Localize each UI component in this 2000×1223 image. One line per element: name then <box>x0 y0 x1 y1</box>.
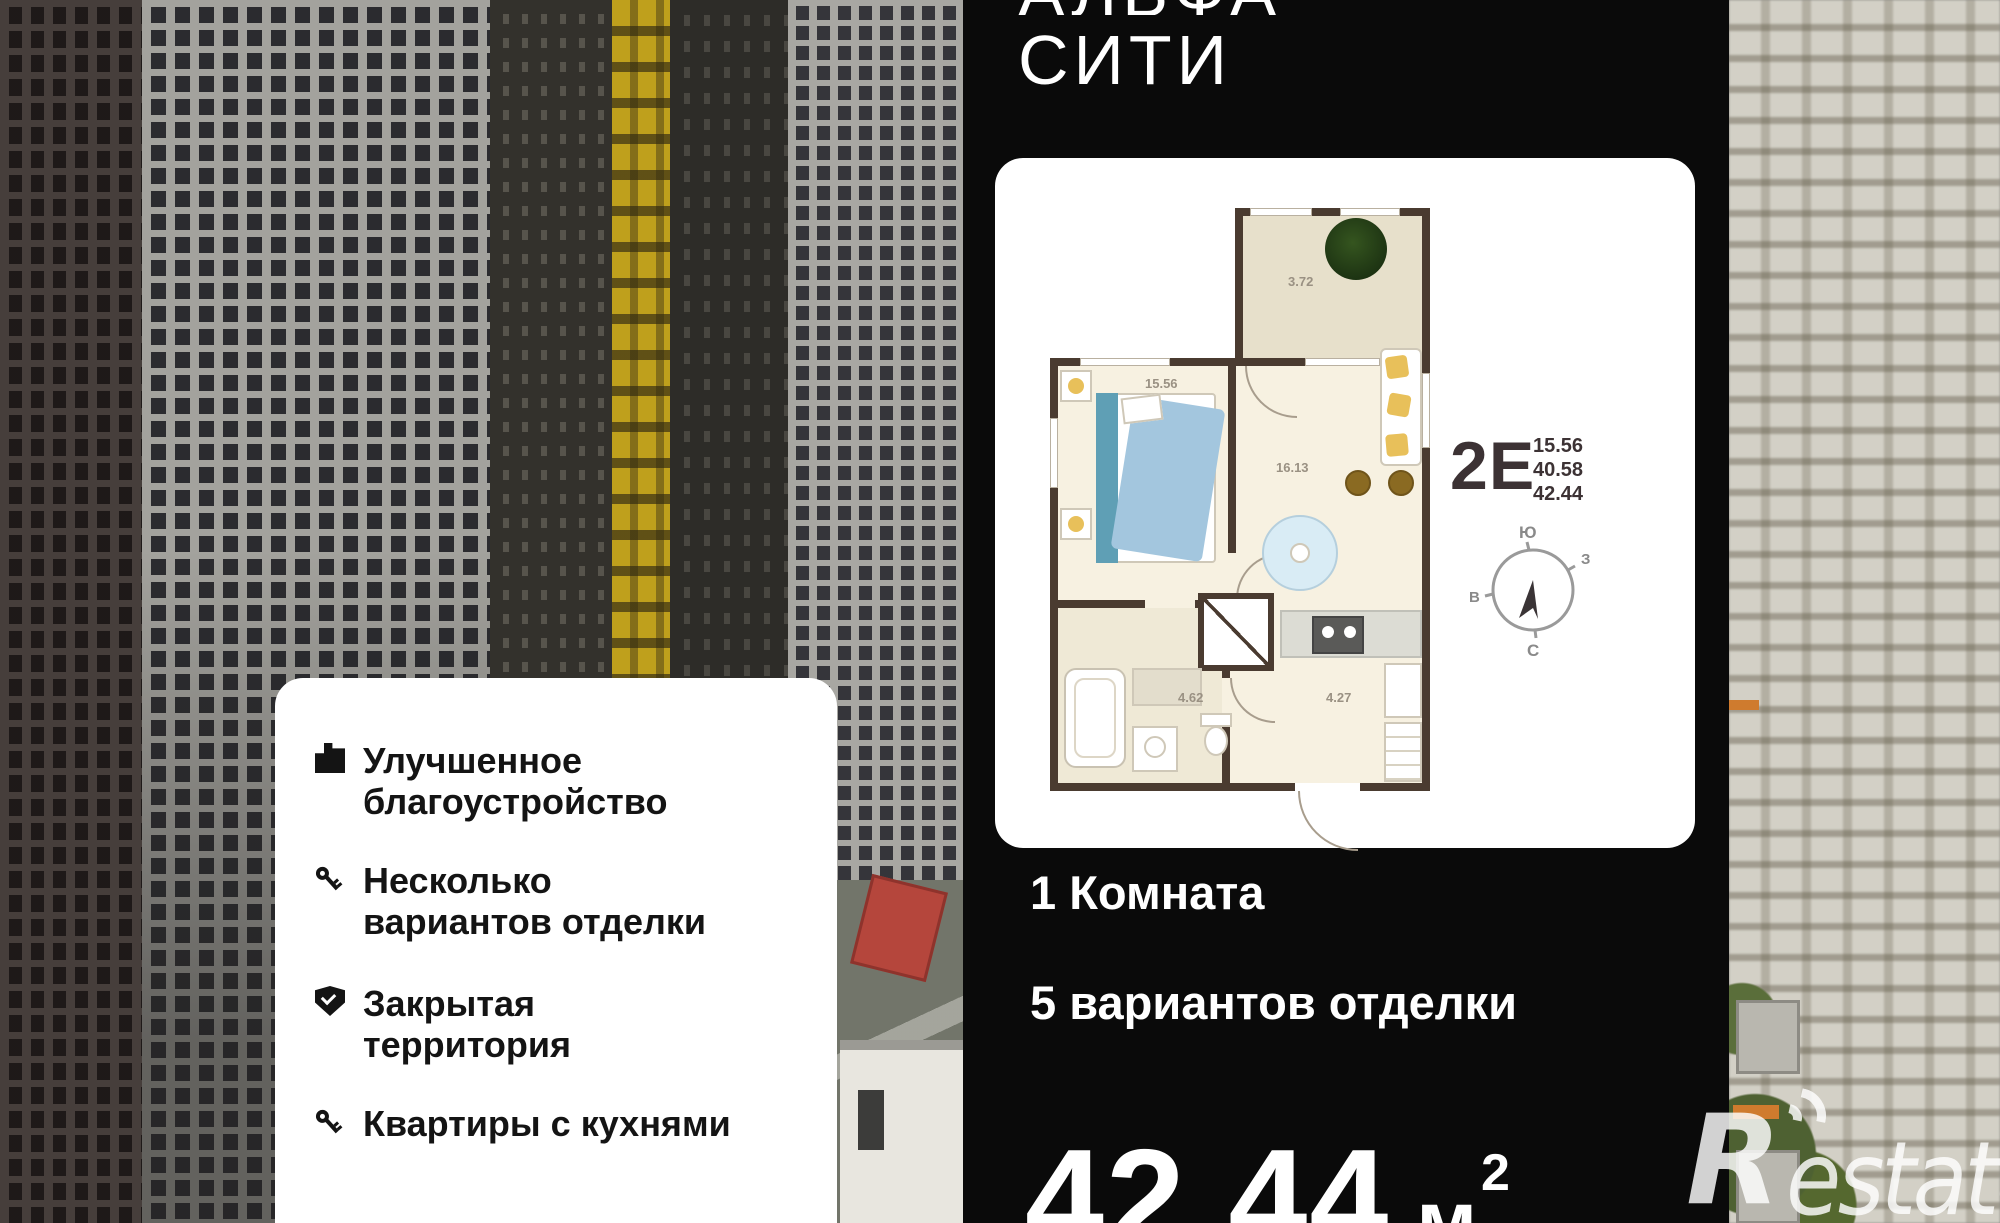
project-title-line2: СИТИ <box>1018 20 1232 100</box>
fridge <box>1384 663 1422 718</box>
feature-text: Улучшенное благоустройство <box>363 740 667 822</box>
chair <box>1345 470 1371 496</box>
feature-text: Закрытая территория <box>363 983 571 1065</box>
wall <box>1422 208 1430 366</box>
area-total: 42.44 <box>1533 482 1583 506</box>
compass-north-label: С <box>1527 641 1539 660</box>
window <box>1340 208 1400 216</box>
window <box>1080 358 1170 366</box>
key-icon <box>309 857 351 899</box>
sofa-pillow <box>1385 433 1409 457</box>
area-living: 40.58 <box>1533 458 1583 482</box>
compass: Ю З В С <box>1463 520 1603 660</box>
watermark-logo-text: estate <box>1786 1120 2000 1223</box>
wall <box>1050 783 1295 791</box>
lamp <box>1068 378 1084 394</box>
watermark-logo-letter: R <box>1686 1089 1781 1223</box>
area-rooms: 15.56 <box>1533 434 1583 458</box>
pillow <box>1121 394 1164 425</box>
area-figures: 15.56 40.58 42.44 <box>1533 434 1583 506</box>
ad-banner: АЛЬФА СИТИ <box>0 0 2000 1223</box>
orange-accent <box>1729 700 1759 710</box>
sofa-pillow <box>1385 355 1410 380</box>
room-area-hallway: 4.27 <box>1326 690 1351 705</box>
courtyard-building <box>840 1040 966 1223</box>
compass-east-label: В <box>1469 589 1480 606</box>
plant <box>1325 218 1387 280</box>
feature-item: Несколько вариантов отделки <box>315 860 706 942</box>
wall <box>1360 783 1430 791</box>
feature-text: Квартиры с кухнями <box>363 1103 731 1144</box>
key-icon <box>309 1100 351 1142</box>
door-arc-entry <box>1298 791 1358 851</box>
room-area-bathroom: 4.62 <box>1178 690 1203 705</box>
washer-door <box>1144 736 1166 758</box>
compass-needle <box>1519 580 1538 619</box>
stove <box>1312 616 1364 654</box>
shield-check-icon <box>315 986 345 1016</box>
floor-plan: 15.56 3.72 16.13 4.62 4.27 <box>1050 208 1435 798</box>
lamp <box>1068 516 1084 532</box>
bathtub-inner <box>1074 678 1116 758</box>
window-balcony-door <box>1305 358 1380 366</box>
flat-type-label: 2Е <box>1450 430 1535 502</box>
sofa-pillow <box>1386 392 1411 417</box>
feature-item: Закрытая территория <box>315 983 571 1065</box>
balcony-block <box>1736 1000 1800 1074</box>
playground-red <box>850 874 948 982</box>
wardrobe <box>1198 593 1274 671</box>
room-area-balcony: 3.72 <box>1288 274 1313 289</box>
building-icon <box>315 743 345 773</box>
wall-bedroom-divider <box>1228 358 1236 553</box>
toilet-bowl <box>1204 726 1228 756</box>
window <box>1422 373 1430 448</box>
restate-watermark: R estate <box>1686 1106 1781 1216</box>
compass-south-label: Ю <box>1519 523 1537 542</box>
floor-plan-card: 15.56 3.72 16.13 4.62 4.27 2Е 15.56 40.5… <box>995 158 1695 848</box>
project-title-line1: АЛЬФА <box>1018 0 1281 15</box>
feature-item: Улучшенное благоустройство <box>315 740 667 822</box>
total-area-unit: м <box>1416 1175 1477 1223</box>
finish-options-text: 5 вариантов отделки <box>1030 975 1517 1030</box>
burner <box>1322 626 1334 638</box>
room-area-living: 16.13 <box>1276 460 1309 475</box>
wall <box>1235 208 1243 366</box>
feature-text: Несколько вариантов отделки <box>363 860 706 942</box>
room-area-bedroom: 15.56 <box>1145 376 1178 391</box>
window <box>1250 208 1312 216</box>
project-title-line1-clipped: АЛЬФА <box>1018 0 1348 15</box>
total-area-sup: 2 <box>1481 1144 1510 1202</box>
total-area-text: 42.44м2 <box>1025 1118 1510 1223</box>
total-area-value: 42.44 <box>1025 1120 1390 1223</box>
toilet-tank <box>1200 713 1232 727</box>
window <box>1050 418 1058 488</box>
table-decor <box>1290 543 1310 563</box>
rooms-count-text: 1 Комната <box>1030 865 1264 920</box>
wall <box>1050 600 1145 608</box>
features-card: Улучшенное благоустройство Несколько вар… <box>275 678 837 1223</box>
burner <box>1344 626 1356 638</box>
chair <box>1388 470 1414 496</box>
photo-building-left-dark <box>0 0 148 1223</box>
kitchen-cabinet <box>1384 722 1422 782</box>
compass-west-label: З <box>1581 551 1590 568</box>
feature-item: Квартиры с кухнями <box>315 1103 731 1144</box>
